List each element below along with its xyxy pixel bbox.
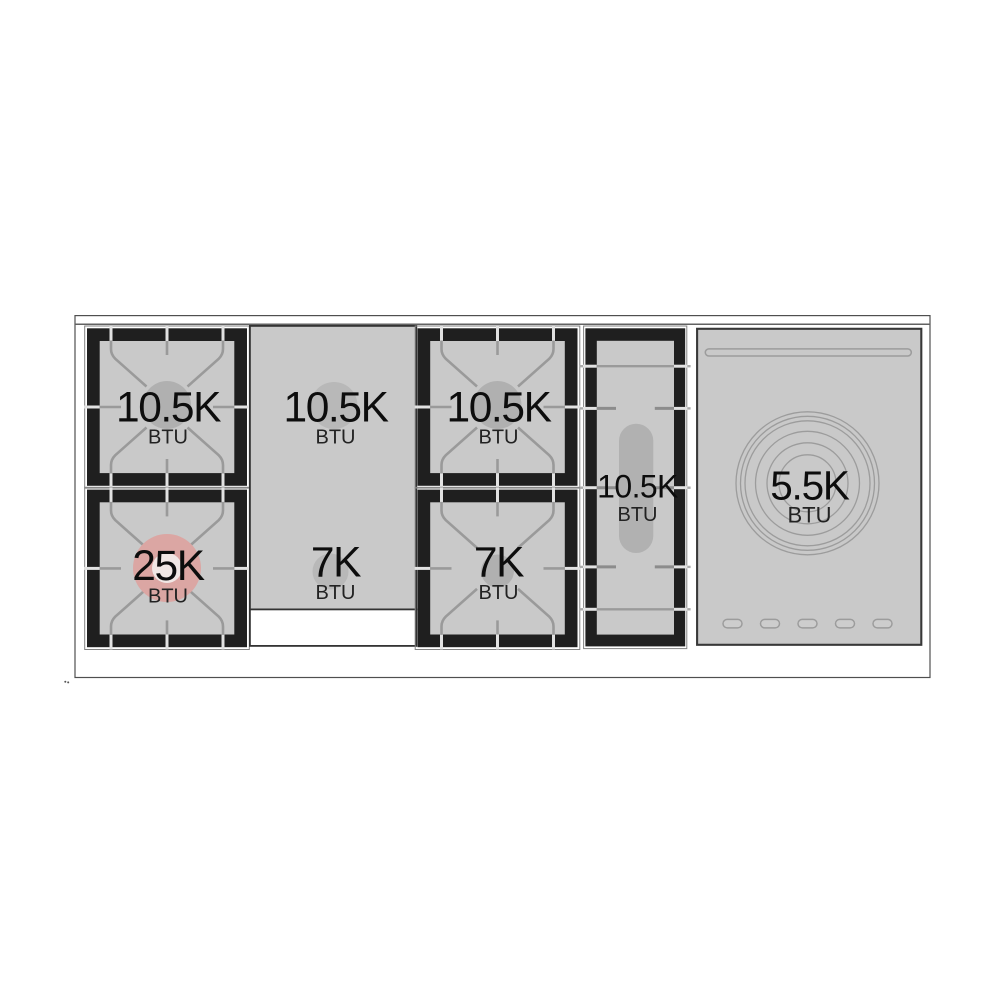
svg-text:BTU: BTU xyxy=(148,426,188,448)
svg-text:7K: 7K xyxy=(474,540,524,587)
svg-text:BTU: BTU xyxy=(618,504,658,526)
svg-text:10.5K: 10.5K xyxy=(597,469,678,505)
svg-text:BTU: BTU xyxy=(479,582,519,604)
svg-text:BTU: BTU xyxy=(788,503,832,528)
svg-text:10.5K: 10.5K xyxy=(446,384,551,431)
svg-text:BTU: BTU xyxy=(479,426,519,448)
svg-text:BTU: BTU xyxy=(148,585,188,607)
svg-text:BTU: BTU xyxy=(316,582,356,604)
svg-text:10.5K: 10.5K xyxy=(116,384,221,431)
svg-text:7K: 7K xyxy=(311,540,361,587)
svg-text:BTU: BTU xyxy=(316,426,356,448)
svg-text:10.5K: 10.5K xyxy=(283,384,388,431)
svg-text:25K: 25K xyxy=(132,543,204,590)
